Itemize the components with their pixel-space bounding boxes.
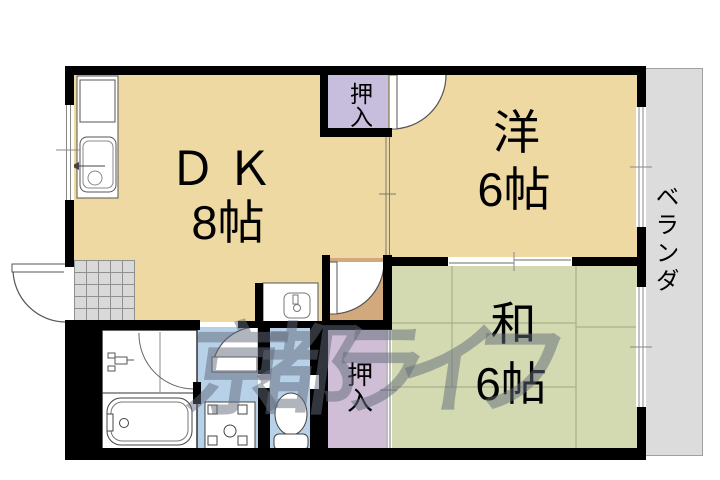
floor-plan: ＤＫ 8帖 洋 6帖 和 6帖 押入 押入 ベランダ 京都ライフ [0,0,720,480]
hall-door-arc-icon [329,262,384,314]
closet-top-label: 押入 [334,78,384,132]
watermark-text: 京都ライフ [180,314,546,429]
bathtub-icon [107,398,192,445]
kitchen-window-icon [56,105,80,200]
room-western-size: 6帖 [441,163,587,215]
room-dk-size: 8帖 [155,196,301,248]
sliding-door-icon [448,252,572,271]
balcony-label: ベランダ [647,170,681,310]
entry-door-arc-icon [12,264,66,322]
room-dk-label: ＤＫ [155,143,297,193]
western-room-door-arc-icon [389,75,446,129]
entry-opening [64,267,74,320]
unit-bath-icon [102,330,197,450]
room-western-label: 洋 [480,107,553,157]
kitchen-counter-icon [71,76,118,198]
